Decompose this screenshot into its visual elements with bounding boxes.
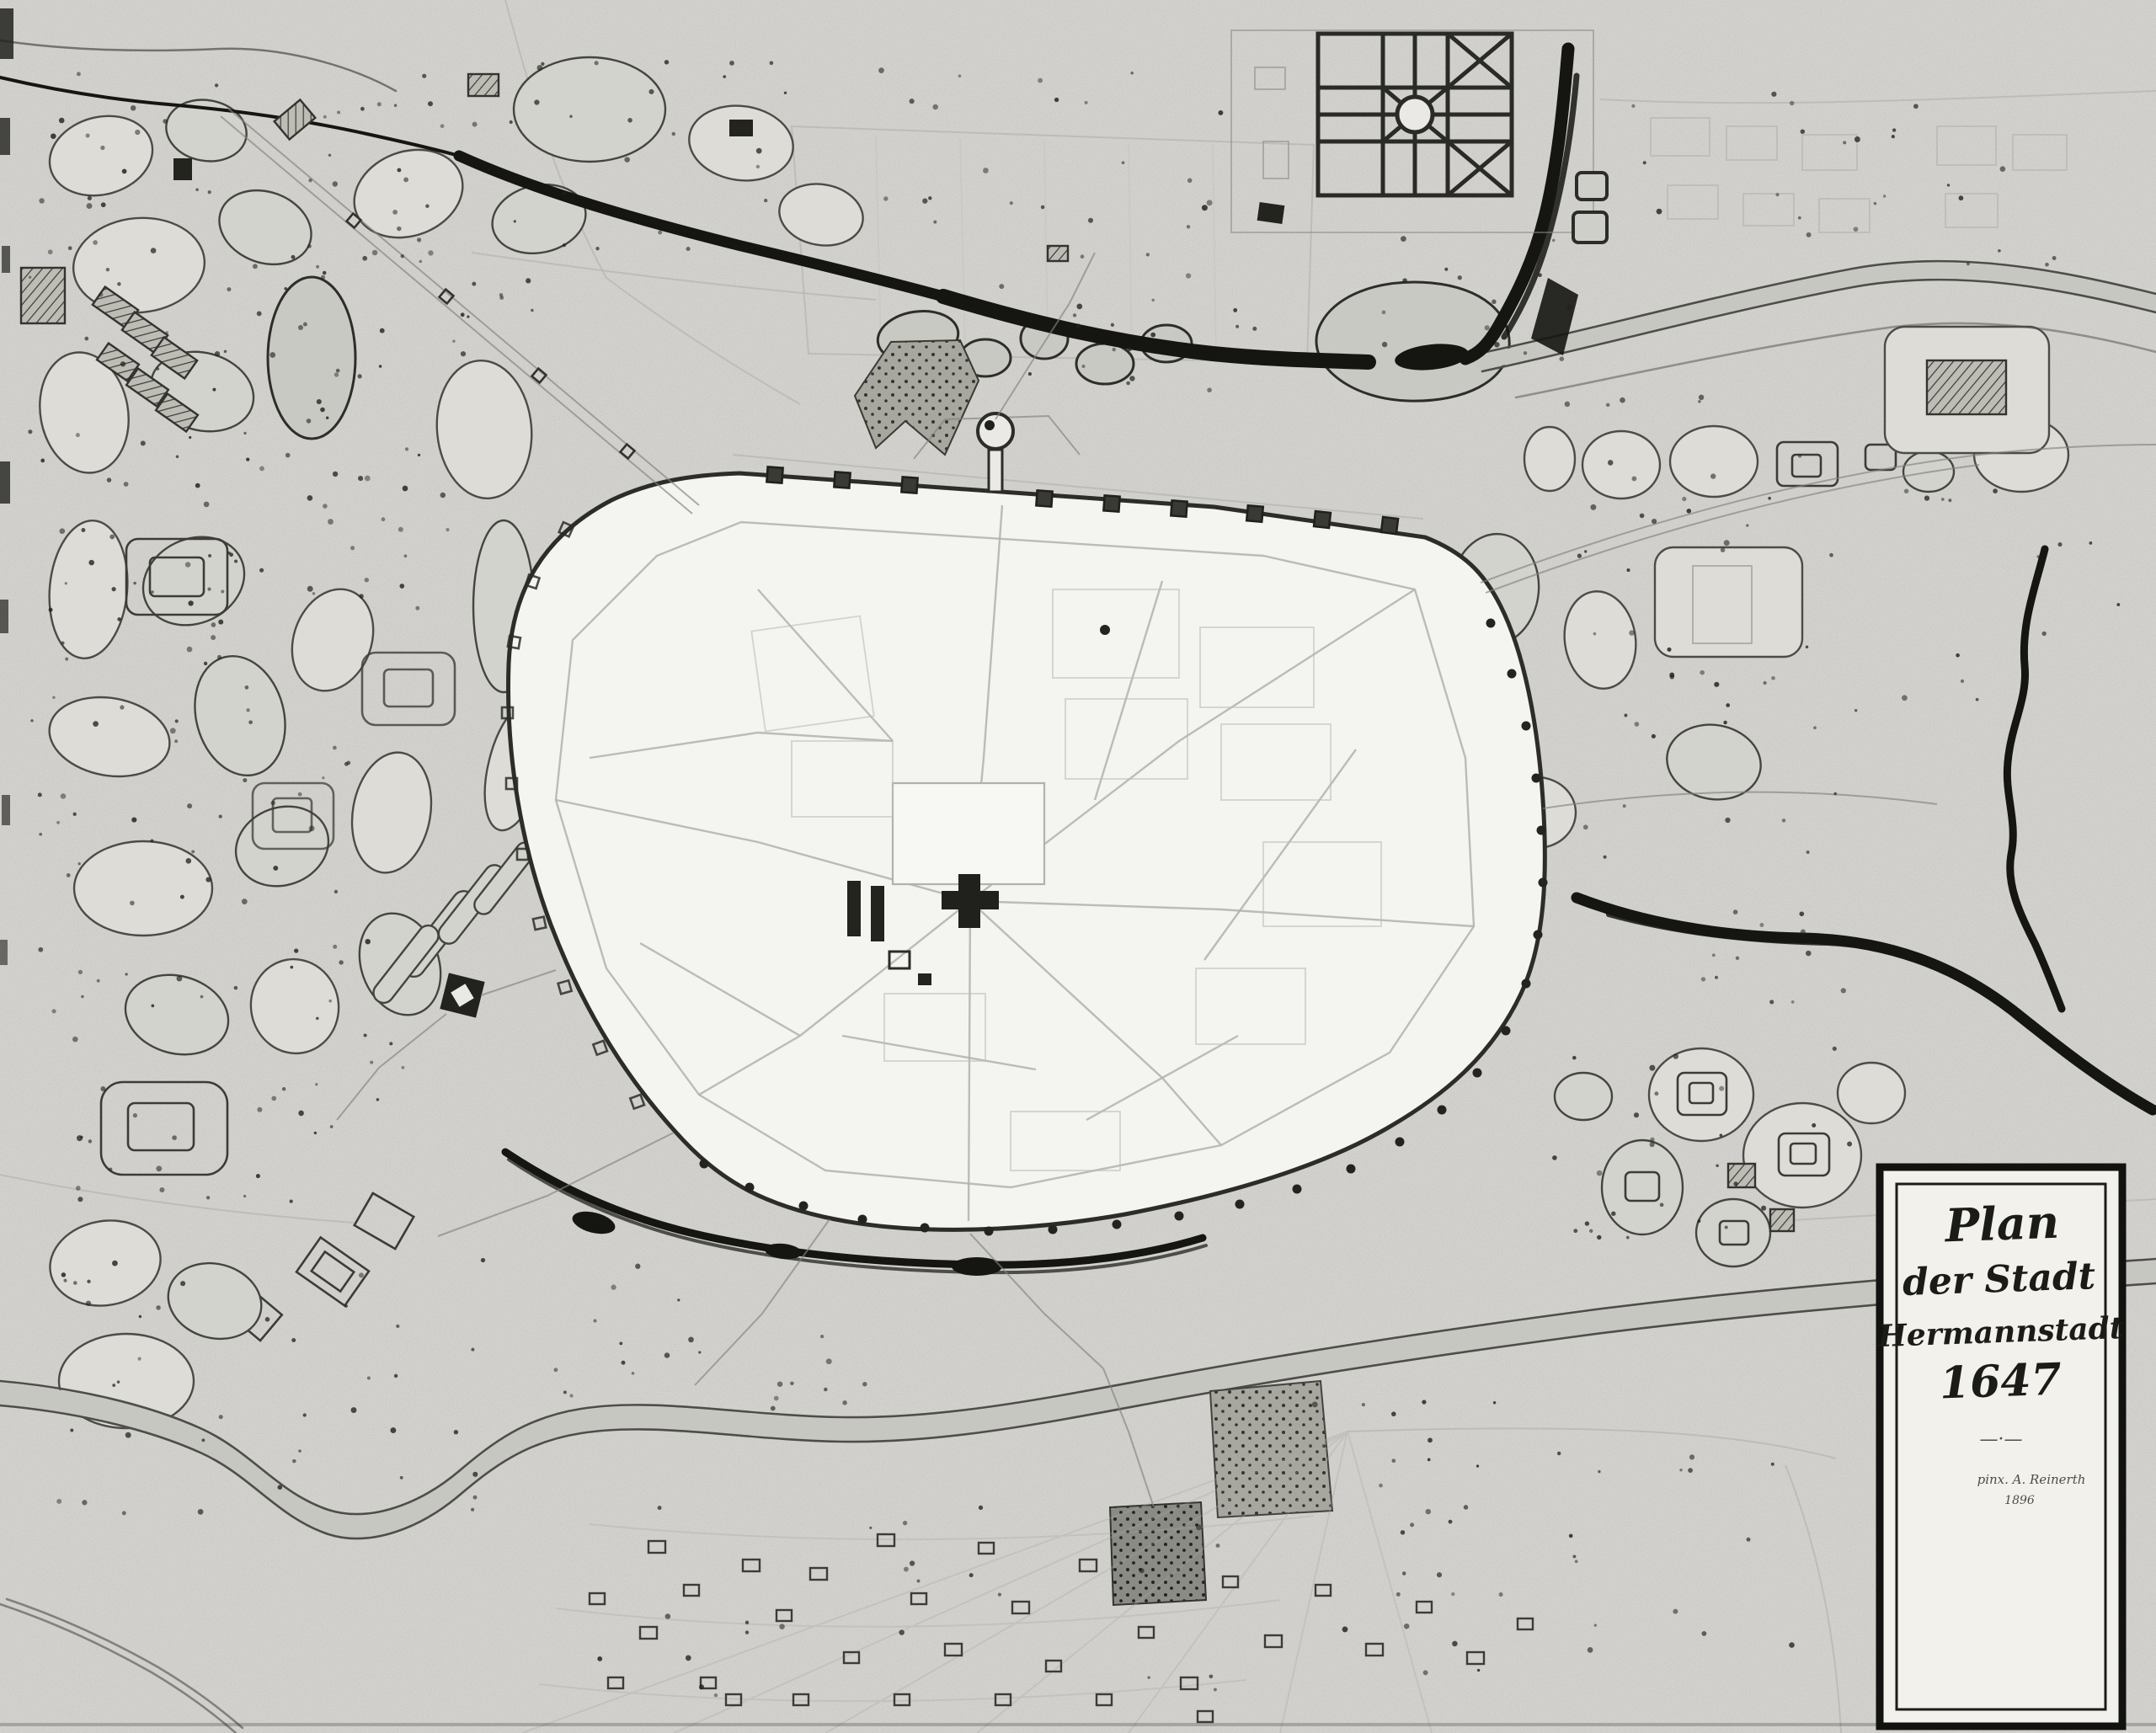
church-building-1 — [847, 881, 861, 936]
cartouche-signature-line1: pinx. A. Reinerth — [1977, 1472, 2086, 1487]
cartouche-signature-line2: 1896 — [2004, 1494, 2035, 1507]
shaded-plot-south-1 — [1210, 1381, 1332, 1517]
map-canvas: Plan der Stadt Hermannstadt 1647 —·— pin… — [0, 0, 2156, 1733]
map-scan: Plan der Stadt Hermannstadt 1647 —·— pin… — [0, 0, 2156, 1733]
cartouche-title-line1: Plan — [1943, 1195, 2061, 1253]
cartouche-title-line4: 1647 — [1939, 1354, 2063, 1410]
church-building-2 — [871, 886, 884, 941]
sluice-house-2 — [1573, 212, 1607, 243]
cartouche: Plan der Stadt Hermannstadt 1647 —·— pin… — [1876, 1167, 2124, 1726]
garden-centre-circle — [1397, 97, 1433, 132]
cartouche-divider: —·— — [1980, 1429, 2023, 1450]
sluice-house-1 — [1577, 173, 1607, 200]
shaded-plot-south-2 — [1110, 1502, 1206, 1605]
cartouche-title-line2: der Stadt — [1902, 1255, 2096, 1304]
market-square — [893, 783, 1044, 884]
